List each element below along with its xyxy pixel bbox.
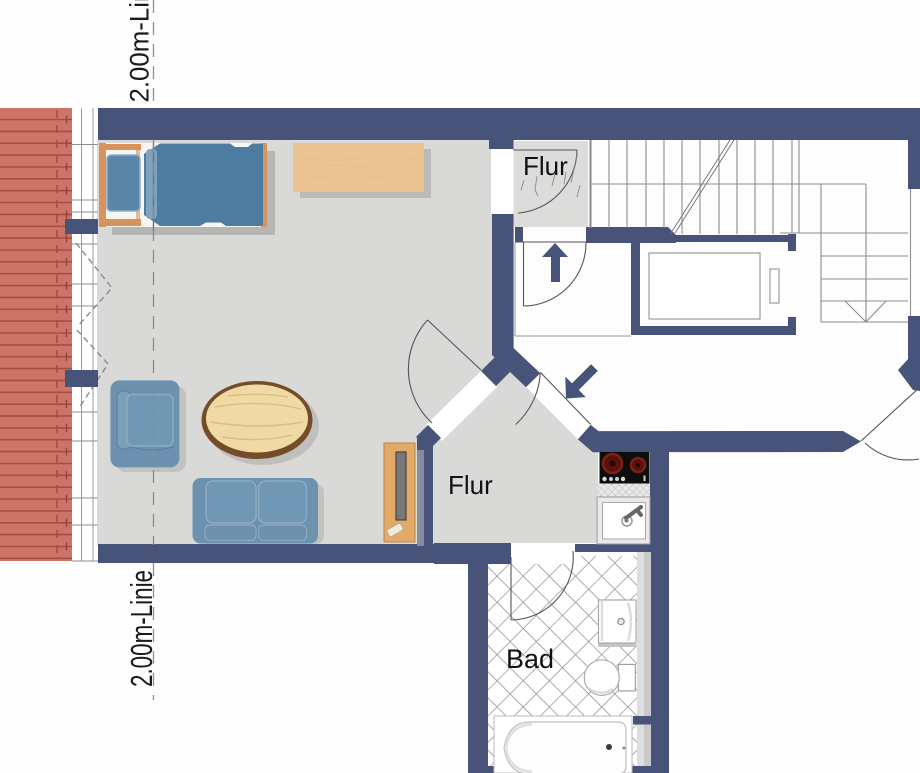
svg-text:Flur: Flur <box>523 151 568 181</box>
svg-text:2.00m-Linie: 2.00m-Linie <box>125 0 155 103</box>
svg-text:2.00m-Linie: 2.00m-Linie <box>124 570 159 687</box>
svg-text:Bad: Bad <box>506 644 554 674</box>
svg-text:Flur: Flur <box>448 470 493 500</box>
